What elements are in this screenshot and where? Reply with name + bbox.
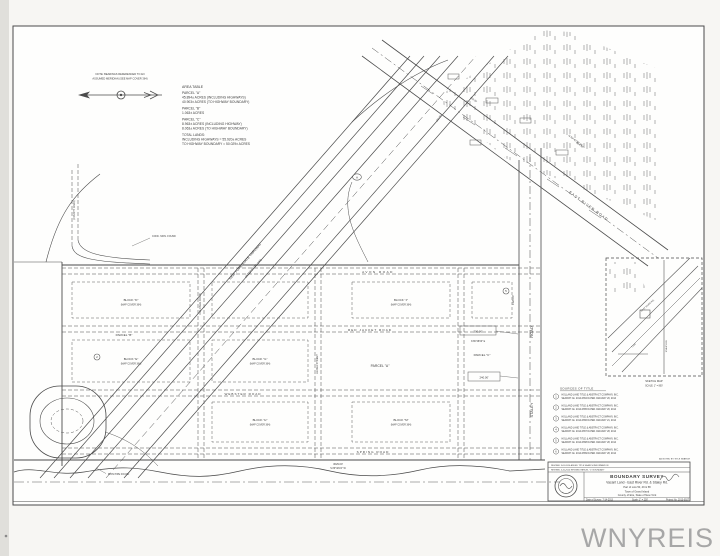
area-line: 1.063± ACRES: [182, 111, 205, 115]
dim-300-box: 300.00': [473, 330, 483, 334]
source-item-line1: HOLLAND LAND TITLE & ABSTRACT COMPANY, I…: [562, 416, 619, 419]
inset-scale: SCALE: 1" = 800': [645, 385, 663, 388]
marker-a: A: [356, 175, 358, 179]
staley-road-label-word1: STALEY: [529, 402, 534, 417]
title-block-date: Date of Survey: 7-14-2013: [586, 498, 614, 501]
source-item-line1: HOLLAND LAND TITLE & ABSTRACT COMPANY, I…: [562, 449, 619, 452]
block-m-label: BLOCK "M": [393, 418, 408, 422]
area-line: TO HIGHWAY BOUNDARY = 50.029± ACRES: [182, 142, 251, 146]
sources-note: AS NOTED BY TITLE SEARCH: [659, 458, 690, 461]
source-item-line1: HOLLAND LAND TITLE & ABSTRACT COMPANY, I…: [562, 394, 619, 397]
monument-note: CONC. MON. FOUND: [152, 235, 176, 238]
parcel-a-label: PARCEL "A": [371, 364, 391, 368]
title-block-title: BOUNDARY SURVEY: [610, 474, 664, 479]
south-dim-bearing: S 89°48'24" W: [330, 467, 346, 470]
block-m-sub: (MAP COVER 364): [391, 424, 412, 427]
area-line: TOTAL LANDS:: [182, 133, 205, 137]
scan-edge-shadow: [0, 0, 9, 556]
dim-300-bearing: N 89°48'00" E: [471, 341, 486, 343]
area-line: PARCEL "B": [182, 107, 201, 111]
block-h-sub: (MAP COVER 364): [250, 424, 271, 427]
spring-road-label: SPRING ROAD: [357, 450, 390, 454]
sources-title: SOURCES OF TITLE: [560, 387, 594, 391]
title-block-town: Town of Grand Island: [625, 489, 650, 493]
source-item-line2: SEARCH No. 2014-0656 DATED JANUARY 21, 2…: [562, 419, 617, 422]
inset-staley-label: STALEY RD.: [665, 339, 668, 352]
title-block-lots: Part of Lots 50, 49 & 58: [623, 485, 651, 489]
block-g-label: BLOCK "G": [253, 357, 268, 361]
block-d-sub: (MAP COVER 364): [121, 304, 142, 307]
aloha-street-label: ALOHA STREET: [315, 354, 319, 374]
surveyor-seal: [555, 475, 577, 497]
block-e-label: BLOCK "E": [124, 357, 139, 361]
area-line: 40.903± ACRES (TO HIGHWAY BOUNDARY): [182, 100, 249, 104]
area-table-title: AREA TABLE: [182, 85, 204, 89]
webster-road-label: WEBSTER ROAD: [224, 392, 261, 396]
area-line: INCLUDING HIGHWAYS = 55.920± ACRES: [182, 138, 247, 142]
inset-caption: SKETCH MAP: [645, 379, 663, 383]
area-line: 8.063± ACRES (TO HIGHWAY BOUNDARY): [182, 127, 248, 131]
block-g-sub: (MAP COVER 364): [250, 363, 271, 366]
block-j-label: BLOCK "J": [394, 298, 408, 302]
source-item-line1: HOLLAND LAND TITLE & ABSTRACT COMPANY, I…: [562, 427, 619, 430]
area-line: 8.963± ACRES (INCLUDING HIGHWAY): [182, 122, 242, 126]
source-item-line2: SEARCH No. 2014-0657 DATED JANUARY 28, 2…: [562, 430, 617, 433]
source-item-line2: SEARCH No. 2014-0658 DATED JANUARY 28, 2…: [562, 441, 617, 444]
north-note-line1: NOTE: BEARINGS REFERENCED TO AN: [95, 72, 144, 76]
avon-road-label: AVON ROAD: [362, 270, 394, 274]
parcel-c-label: PARCEL "C": [474, 353, 491, 357]
block-d-label: BLOCK "D": [124, 298, 139, 302]
staley-dim: 1320.00': [511, 295, 515, 305]
parcel-b-label: PARCEL "B": [116, 333, 133, 337]
source-item-line2: SEARCH No. 2014-0659 DATED JANUARY 28, 2…: [562, 452, 617, 455]
block-j-sub: (MAP COVER 364): [391, 304, 412, 307]
block-e-sub: (MAP COVER 364): [121, 363, 142, 366]
title-block-project: Project No. 2013-0927: [666, 498, 690, 501]
source-item-line1: HOLLAND LAND TITLE & ABSTRACT COMPANY, I…: [562, 405, 619, 408]
north-arrow-dot: [120, 94, 122, 96]
source-item-line1: HOLLAND LAND TITLE & ABSTRACT COMPANY, I…: [562, 438, 619, 441]
north-note-line2: ASSUMED MERIDIAN (SEE MAP COVER 364): [92, 77, 147, 81]
area-line: PARCEL "C": [182, 118, 201, 122]
revision-line2: REVISED 4-10-2014 REVISED PARCEL "C" BOU…: [551, 469, 605, 472]
title-block-scale: Scale: 1" = 200': [632, 499, 649, 501]
source-item-line2: SEARCH No. 2014-0654 DATED JANUARY 20, 2…: [562, 397, 617, 400]
revision-line1: REVISED 3-05-2014 ADDED TITLE SEARCH INF…: [551, 464, 609, 467]
title-block-county: County of Erie, State of New York: [618, 493, 657, 497]
source-item-line2: SEARCH No. 2014-0655 DATED JANUARY 20, 2…: [562, 408, 617, 411]
block-h-label: BLOCK "H": [253, 418, 268, 422]
dim-240-box: 240.00': [479, 376, 489, 380]
area-line: 45.894± ACRES (INCLUDING HIGHWAYS): [182, 96, 246, 100]
red-jacket-road-label: RED JACKET ROAD: [348, 328, 392, 332]
title-block-subtitle: Vacant Land - East River Rd. & Staley Rd…: [606, 481, 668, 485]
county-road-label: (COUNTY ROAD): [73, 200, 76, 219]
colonial-road-label: COLONIAL ROAD: [198, 293, 202, 314]
iron-pipe-note: IRON PIPE FOUND: [108, 473, 130, 476]
wnyreis-watermark: WNYREIS: [581, 523, 714, 554]
scan-speck: [5, 535, 8, 538]
area-line: PARCEL "A": [182, 91, 201, 95]
south-dim-length: 3629.00': [333, 462, 343, 466]
survey-sheet: NOTE: BEARINGS REFERENCED TO AN ASSUMED …: [0, 0, 720, 556]
